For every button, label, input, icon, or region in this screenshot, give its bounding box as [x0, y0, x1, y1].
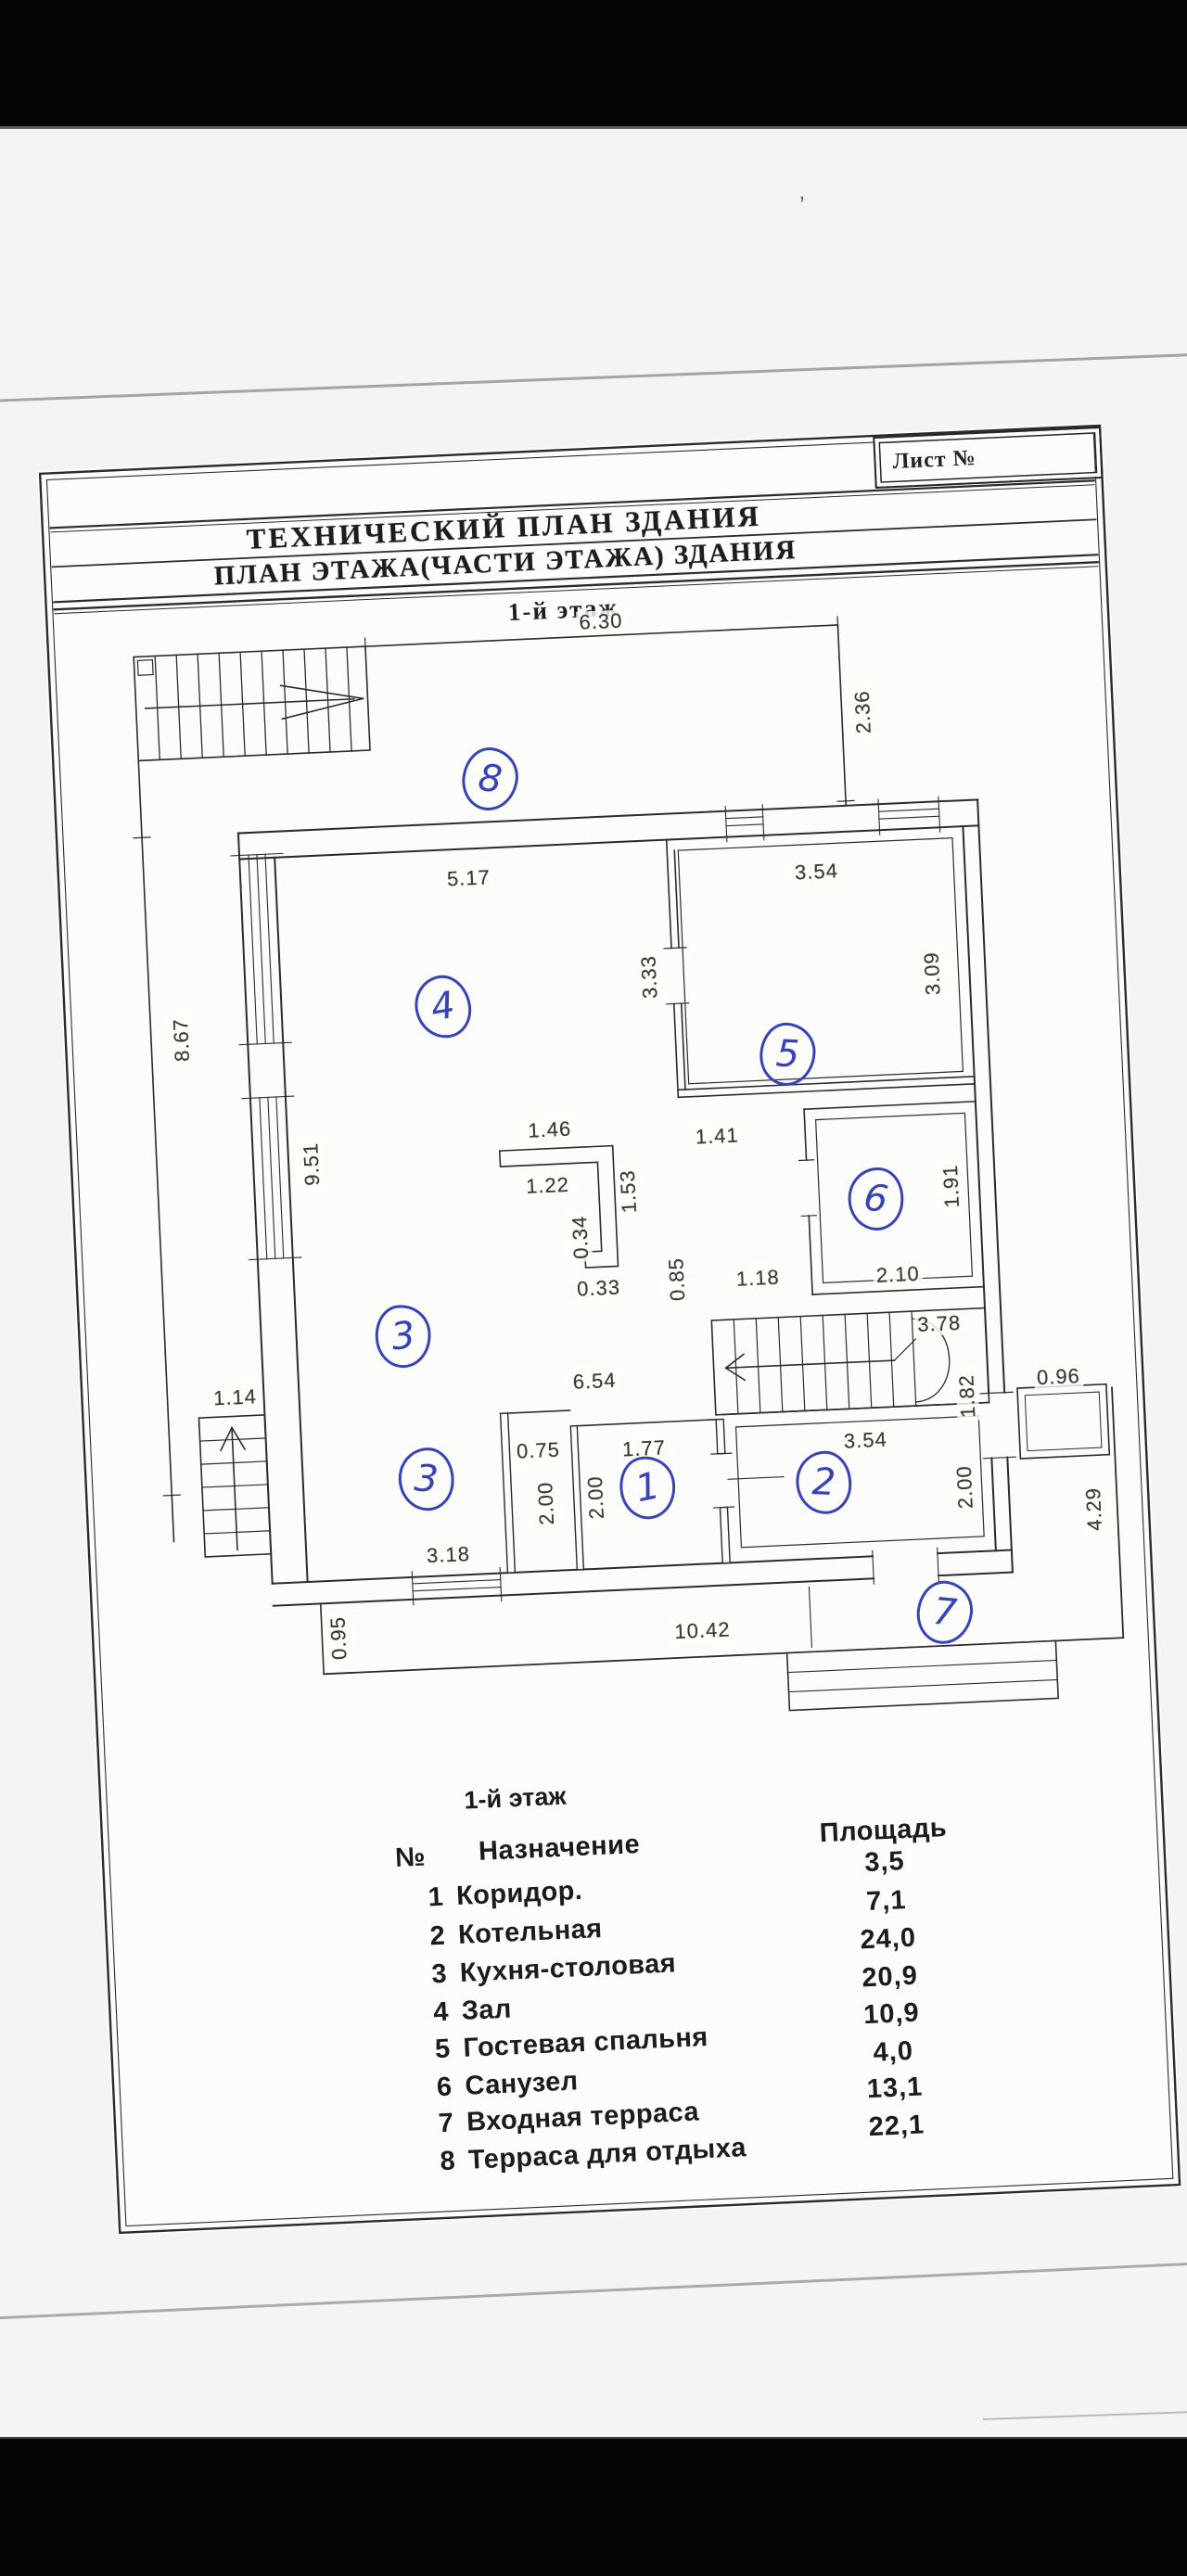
- dimension-label: 1.91: [939, 1161, 964, 1211]
- dimension-label: 1.41: [692, 1124, 742, 1148]
- legend-row-number: 8: [428, 2146, 455, 2177]
- legend-row-number: 3: [420, 1959, 447, 1991]
- dimension-label: 0.95: [326, 1613, 351, 1664]
- legend-row-area: 20,9: [820, 1959, 960, 1996]
- dimension-label: 6.54: [569, 1370, 619, 1394]
- photo-black-bar-bottom: [0, 2437, 1187, 2576]
- legend-row-name: Санузел: [465, 2066, 579, 2102]
- dimension-label: 3.33: [637, 952, 661, 1002]
- dimension-label: 2.00: [534, 1478, 558, 1528]
- dimension-label: 2.10: [873, 1263, 923, 1287]
- legend-row-number: 5: [424, 2034, 451, 2066]
- dimension-label: 9.51: [300, 1139, 324, 1189]
- photo-black-bar-top: [0, 0, 1187, 129]
- dimension-label: 0.75: [514, 1438, 564, 1462]
- dimension-label: 1.46: [525, 1117, 575, 1141]
- dimension-label: 0.33: [574, 1276, 624, 1300]
- legend-row-name: Зал: [461, 1995, 512, 2027]
- sheet-number-label: Лист №: [892, 446, 976, 475]
- legend-row-name: Котельная: [457, 1914, 603, 1951]
- legend-row-number: 1: [417, 1882, 444, 1914]
- legend-row-number: 7: [428, 2108, 454, 2139]
- dimension-label: 1.82: [955, 1371, 979, 1422]
- legend-row-name: Коридор.: [455, 1876, 582, 1912]
- dimension-label: 3.54: [792, 860, 842, 884]
- legend-row-area: 10,9: [822, 1996, 962, 2034]
- legend-row-number: 6: [426, 2072, 453, 2104]
- legend-row-area: 3,5: [814, 1844, 954, 1881]
- dimension-label: 4.29: [1082, 1485, 1106, 1535]
- dimension-label: 3.78: [914, 1312, 964, 1336]
- paper-edge-line: [983, 2404, 1187, 2420]
- legend-col-no: №: [395, 1843, 427, 1874]
- paper-edge-line: [0, 351, 1187, 403]
- dimension-label: 3.18: [424, 1543, 474, 1567]
- legend-row-area: 7,1: [816, 1883, 956, 1920]
- dimension-label: 2.00: [953, 1462, 977, 1512]
- legend-row-area: 13,1: [824, 2070, 964, 2107]
- scan-speck: ’: [799, 191, 805, 220]
- legend-row-area: 4,0: [823, 2034, 964, 2071]
- dimension-label: 5.17: [443, 866, 493, 890]
- dimension-label: 1.53: [617, 1167, 641, 1217]
- dimension-label: 3.54: [840, 1428, 890, 1452]
- dimension-label: 6.30: [576, 609, 626, 633]
- legend-row-number: 4: [422, 1997, 449, 2029]
- dimension-label: 0.96: [1034, 1365, 1084, 1389]
- dimension-label: 1.22: [523, 1174, 573, 1198]
- sheet-number-box: Лист №: [873, 427, 1103, 489]
- legend-row-area: 24,0: [818, 1921, 958, 1958]
- dimension-label: 2.00: [584, 1473, 608, 1523]
- paper-edge-line: [0, 2259, 1187, 2321]
- dimension-label: 1.18: [733, 1266, 783, 1290]
- legend-row-area: 22,1: [826, 2108, 966, 2145]
- scanned-sheet: Лист № ТЕХНИЧЕСКИЙ ПЛАН ЗДАНИЯ ПЛАН ЭТАЖ…: [37, 423, 1182, 2236]
- dimension-label: 0.34: [568, 1212, 593, 1262]
- dimension-label: 3.09: [920, 949, 944, 999]
- legend-row-number: 2: [418, 1921, 445, 1953]
- dimension-label: 8.67: [170, 1015, 194, 1065]
- dimension-label: 0.85: [665, 1255, 689, 1305]
- dimension-label: 1.14: [211, 1385, 261, 1409]
- dimension-label: 2.36: [851, 687, 875, 737]
- dimension-label: 10.42: [671, 1618, 734, 1643]
